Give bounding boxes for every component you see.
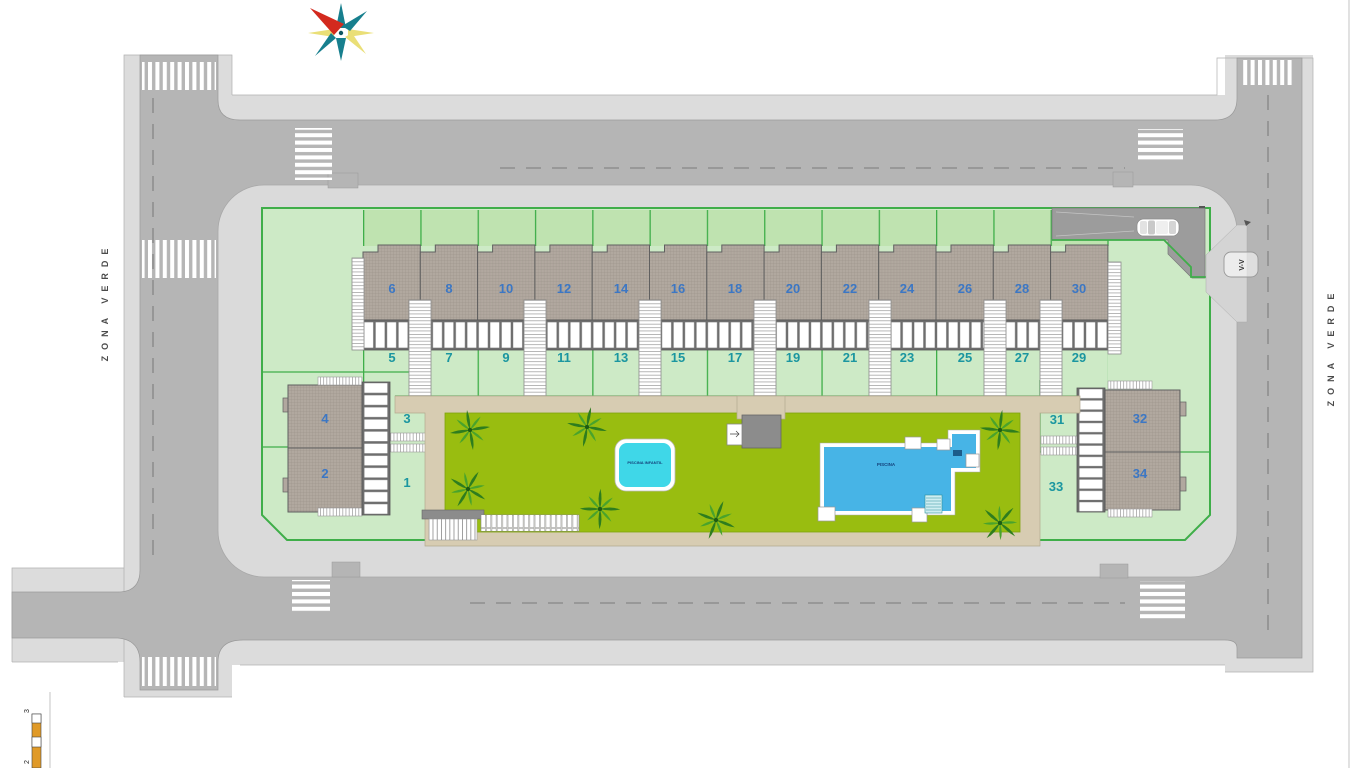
bike-racks bbox=[481, 515, 579, 531]
unit-number: 33 bbox=[1049, 479, 1063, 494]
unit-number: 24 bbox=[900, 281, 915, 296]
unit-number: 22 bbox=[843, 281, 857, 296]
unit-number: 1 bbox=[403, 475, 410, 490]
unit-number: 19 bbox=[786, 350, 800, 365]
unit-number: 31 bbox=[1050, 412, 1064, 427]
site-plan: V-V bbox=[0, 0, 1366, 768]
zona-verde-right-label: ZONA VERDE bbox=[1326, 288, 1336, 407]
unit-number: 7 bbox=[445, 350, 452, 365]
unit-number: 13 bbox=[614, 350, 628, 365]
unit-number: 8 bbox=[445, 281, 452, 296]
crosswalk bbox=[1243, 60, 1295, 85]
unit-number: 14 bbox=[614, 281, 629, 296]
unit-number: 10 bbox=[499, 281, 513, 296]
crosswalk bbox=[142, 657, 216, 686]
crosswalk bbox=[142, 62, 216, 90]
unit-number: 16 bbox=[671, 281, 685, 296]
crosswalk bbox=[1138, 129, 1183, 162]
unit-number: 25 bbox=[958, 350, 972, 365]
unit-number: 34 bbox=[1133, 466, 1148, 481]
unit-number: 30 bbox=[1072, 281, 1086, 296]
car-icon bbox=[1137, 219, 1179, 236]
unit-number: 15 bbox=[671, 350, 685, 365]
main-pool-label: PISCINA bbox=[877, 462, 896, 467]
unit-number: 21 bbox=[843, 350, 857, 365]
unit-number: 6 bbox=[388, 281, 395, 296]
unit-number: 18 bbox=[728, 281, 742, 296]
unit-number: 29 bbox=[1072, 350, 1086, 365]
pergola bbox=[422, 510, 484, 540]
kids-pool-label: PISCINA INFANTIL bbox=[627, 460, 663, 465]
crosswalk bbox=[295, 128, 332, 180]
pool-steps bbox=[925, 495, 942, 513]
unit-number: 3 bbox=[403, 411, 410, 426]
scale-top-label: 3 bbox=[24, 709, 31, 713]
unit-number: 11 bbox=[557, 350, 571, 365]
unit-number: 23 bbox=[900, 350, 914, 365]
scale-bottom-label: 2 bbox=[24, 760, 31, 764]
visitor-parking-label: V-V bbox=[1239, 259, 1246, 271]
scale-bar: 3 2 bbox=[24, 709, 41, 768]
unit-number: 4 bbox=[321, 411, 329, 426]
unit-number: 9 bbox=[502, 350, 509, 365]
unit-number: 20 bbox=[786, 281, 800, 296]
unit-number: 2 bbox=[321, 466, 328, 481]
compass-rose-icon bbox=[308, 3, 374, 61]
unit-number: 28 bbox=[1015, 281, 1029, 296]
crosswalk bbox=[292, 580, 330, 614]
unit-number: 27 bbox=[1015, 350, 1029, 365]
unit-number: 26 bbox=[958, 281, 972, 296]
crosswalk bbox=[1140, 581, 1185, 621]
unit-number: 17 bbox=[728, 350, 742, 365]
unit-number: 5 bbox=[388, 350, 395, 365]
courtyard: PISCINA INFANTIL PISCINA bbox=[395, 396, 1080, 551]
unit-number: 32 bbox=[1133, 411, 1147, 426]
kids-pool: PISCINA INFANTIL bbox=[615, 439, 675, 491]
zona-verde-left-label: ZONA VERDE bbox=[100, 243, 110, 362]
unit-number: 12 bbox=[557, 281, 571, 296]
